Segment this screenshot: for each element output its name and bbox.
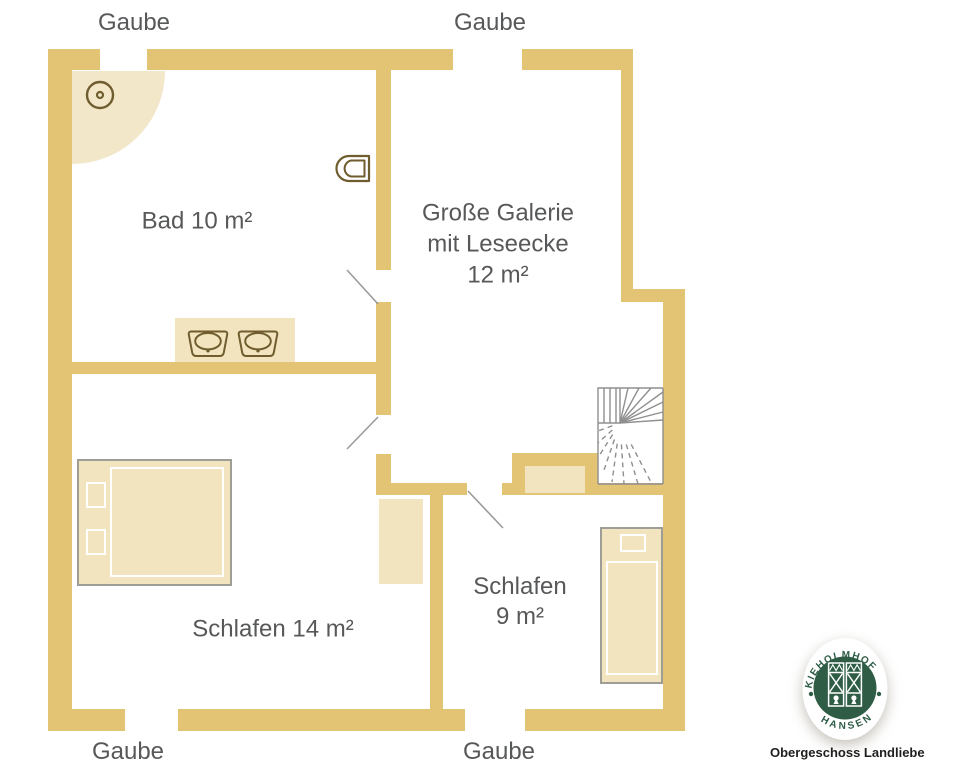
room-label-galerie: Große Galerie mit Leseecke 12 m²	[422, 198, 574, 291]
kieholmhof-logo: KIEHOLMHOF HANSEN	[802, 637, 888, 743]
gaube-label-top-left: Gaube	[98, 11, 170, 35]
gaube-label-bottom-left: Gaube	[92, 740, 164, 764]
logo-caption: Obergeschoss Landliebe	[770, 745, 922, 760]
floor-plan: Gaube Gaube Gaube Gaube Bad 10 m² Große …	[0, 0, 965, 768]
room-label-schlafen14: Schlafen 14 m²	[192, 614, 353, 645]
room-label-schlafen9-line2: 9 m²	[473, 602, 566, 632]
staircase-icon	[598, 388, 663, 484]
room-label-bad: Bad 10 m²	[142, 206, 253, 237]
room-label-galerie-line2: mit Leseecke	[422, 229, 574, 260]
room-label-schlafen9-line1: Schlafen	[473, 572, 566, 602]
washbasin-icons	[189, 332, 278, 357]
door-line-schlafen9	[468, 491, 503, 528]
room-label-schlafen9: Schlafen 9 m²	[473, 572, 566, 632]
logo-dot-right	[877, 692, 881, 696]
door-line-bad-galerie	[347, 270, 378, 304]
door-swing-lines	[347, 270, 503, 528]
room-label-galerie-line3: 12 m²	[422, 260, 574, 291]
gaube-label-top-middle: Gaube	[454, 11, 526, 35]
floor-drain-icon	[87, 82, 113, 108]
toilet-icon	[337, 156, 370, 181]
room-label-galerie-line1: Große Galerie	[422, 198, 574, 229]
gaube-label-bottom-middle: Gaube	[463, 740, 535, 764]
logo-dot-left	[809, 692, 813, 696]
door-line-schlafen14	[347, 417, 378, 449]
